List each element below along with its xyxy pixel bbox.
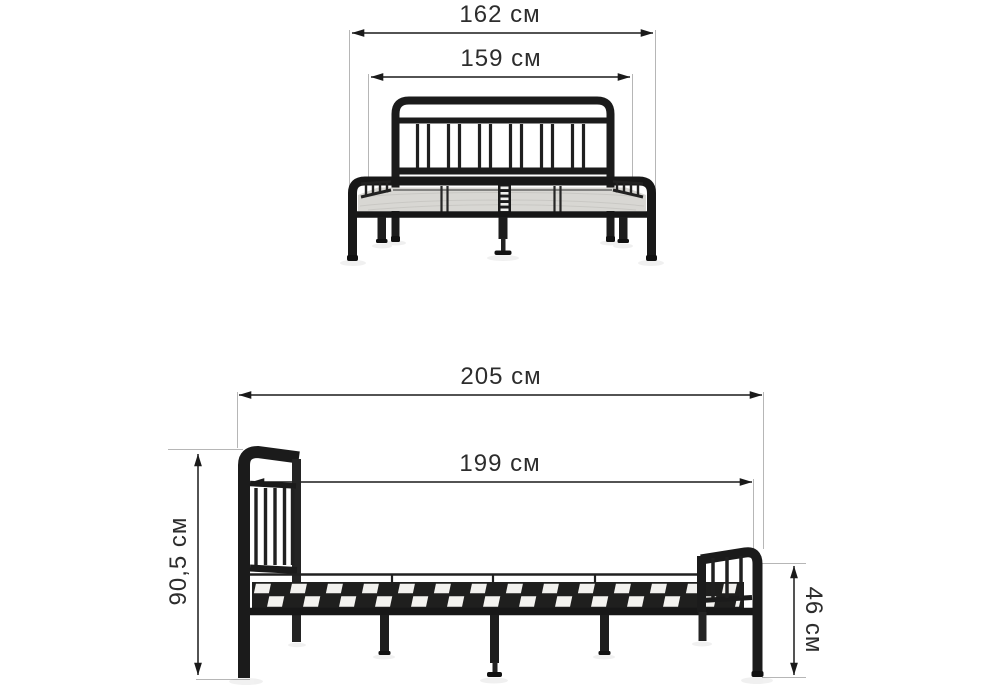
bed-dimensions-diagram: 162 см 159 см 205 см 199 см 90,5 см 46 с… xyxy=(0,0,1000,700)
side-view-bed-drawing xyxy=(229,452,773,685)
side-view-extension-lines xyxy=(168,392,806,680)
front-view-bed-drawing xyxy=(340,101,664,267)
front-total-width-label: 162 см xyxy=(400,1,600,29)
side-total-length-label: 205 см xyxy=(401,363,601,391)
headboard-height-label: 90,5 см xyxy=(165,491,193,631)
front-inner-width-label: 159 см xyxy=(401,45,601,73)
bed-drawings xyxy=(0,0,1000,700)
footboard-height-label: 46 см xyxy=(799,560,827,680)
side-inner-length-label: 199 см xyxy=(400,450,600,478)
